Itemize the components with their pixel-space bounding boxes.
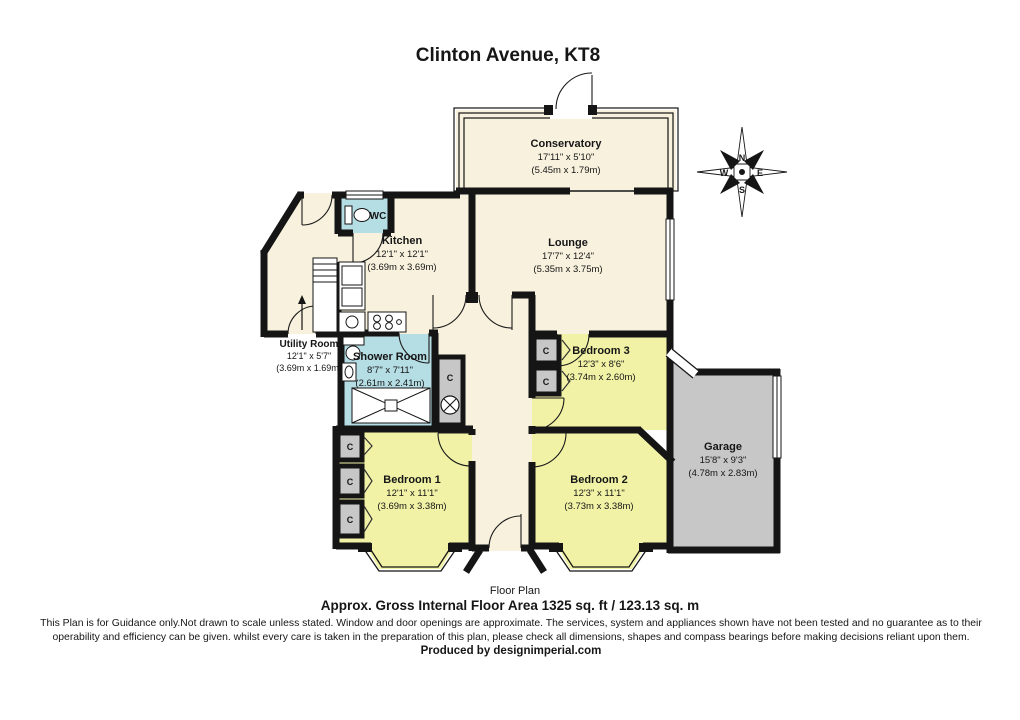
sink-unit-icon <box>339 262 365 310</box>
svg-text:(3.69m x 3.69m): (3.69m x 3.69m) <box>367 262 436 273</box>
label-bedroom1: Bedroom 1 12'1" x 11'1" (3.69m x 3.38m) <box>377 474 446 512</box>
svg-text:Shower Room: Shower Room <box>353 351 427 363</box>
floorplan-svg: N E S W Conservatory 17'11" x 5'10" (5.4… <box>0 0 1020 720</box>
hob-icon <box>368 312 406 332</box>
svg-text:(3.74m x 2.60m): (3.74m x 2.60m) <box>566 372 635 383</box>
svg-text:Bedroom 3: Bedroom 3 <box>572 345 629 357</box>
svg-text:Bedroom 2: Bedroom 2 <box>570 474 627 486</box>
svg-text:12'1" x 5'7": 12'1" x 5'7" <box>287 351 331 361</box>
svg-text:17'11" x 5'10": 17'11" x 5'10" <box>538 152 595 163</box>
label-cupboard: C <box>347 442 354 452</box>
svg-text:15'8" x 9'3": 15'8" x 9'3" <box>700 455 747 466</box>
bay1-fill <box>366 546 454 569</box>
cupboard-hall <box>437 357 463 425</box>
svg-text:(3.69m x 3.38m): (3.69m x 3.38m) <box>377 501 446 512</box>
room-conservatory <box>456 110 676 191</box>
svg-text:(3.69m x 1.69m): (3.69m x 1.69m) <box>276 363 342 373</box>
disclaimer-line1: This Plan is for Guidance only.Not drawn… <box>40 618 982 629</box>
disclaimer-line2: operability and efficiency can be given.… <box>52 632 969 643</box>
label-bedroom2: Bedroom 2 12'3" x 11'1" (3.73m x 3.38m) <box>564 474 633 512</box>
label-cupboard: C <box>347 477 354 487</box>
label-cupboard: C <box>543 346 550 356</box>
label-cupboard: C <box>347 515 354 525</box>
label-wc: WC <box>370 211 387 222</box>
window-wc-top <box>346 191 383 199</box>
compass-west-label: W <box>720 168 729 178</box>
label-conservatory: Conservatory 17'11" x 5'10" (5.45m x 1.7… <box>531 138 603 176</box>
svg-text:(3.73m x 3.38m): (3.73m x 3.38m) <box>564 501 633 512</box>
wall-stub <box>544 105 553 115</box>
svg-text:17'7" x 12'4": 17'7" x 12'4" <box>542 251 594 262</box>
credit-line: Produced by designimperial.com <box>421 645 602 657</box>
basin-icon <box>342 363 356 381</box>
svg-text:Lounge: Lounge <box>548 237 588 249</box>
hall-corridor <box>433 293 532 334</box>
compass-icon: N E S W <box>697 127 787 217</box>
page-title: Clinton Avenue, KT8 <box>416 45 600 66</box>
svg-text:12'1" x 11'1": 12'1" x 11'1" <box>386 488 437 499</box>
svg-text:Utility Room: Utility Room <box>280 339 339 350</box>
bay2-fill <box>557 546 645 569</box>
svg-text:(4.78m x 2.83m): (4.78m x 2.83m) <box>688 468 757 479</box>
compass-north-label: N <box>739 153 746 163</box>
footer: Floor Plan Approx. Gross Internal Floor … <box>40 585 982 657</box>
label-cupboard: C <box>447 373 454 383</box>
svg-text:12'3" x 11'1": 12'3" x 11'1" <box>573 488 624 499</box>
floor-plan-label: Floor Plan <box>490 585 540 597</box>
stairs-icon <box>313 258 337 332</box>
svg-text:Bedroom 1: Bedroom 1 <box>383 474 440 486</box>
compass-east-label: E <box>757 168 763 178</box>
svg-text:8'7" x 7'11": 8'7" x 7'11" <box>367 365 413 376</box>
shower-tray-icon <box>352 388 430 423</box>
compass-south-label: S <box>739 185 745 195</box>
window-lounge-right <box>666 219 674 300</box>
label-utility: Utility Room 12'1" x 5'7" (3.69m x 1.69m… <box>276 339 342 373</box>
svg-text:Garage: Garage <box>704 441 742 453</box>
svg-text:12'1" x 12'1": 12'1" x 12'1" <box>376 249 428 260</box>
area-line: Approx. Gross Internal Floor Area 1325 s… <box>321 598 699 613</box>
floorplan-page: N E S W Conservatory 17'11" x 5'10" (5.4… <box>0 0 1020 720</box>
svg-text:(5.45m x 1.79m): (5.45m x 1.79m) <box>531 165 600 176</box>
svg-text:(5.35m x 3.75m): (5.35m x 3.75m) <box>533 264 602 275</box>
cylinder-icon <box>441 396 459 414</box>
svg-text:12'3" x 8'6": 12'3" x 8'6" <box>578 359 625 370</box>
label-cupboard: C <box>543 377 550 387</box>
svg-text:Conservatory: Conservatory <box>531 138 603 150</box>
appliance-icon <box>339 312 365 332</box>
door-post <box>466 292 478 303</box>
svg-text:(2.61m x 2.41m): (2.61m x 2.41m) <box>355 378 424 389</box>
hall-lower <box>472 429 532 551</box>
svg-text:Kitchen: Kitchen <box>382 235 423 247</box>
garage-door <box>773 376 781 458</box>
